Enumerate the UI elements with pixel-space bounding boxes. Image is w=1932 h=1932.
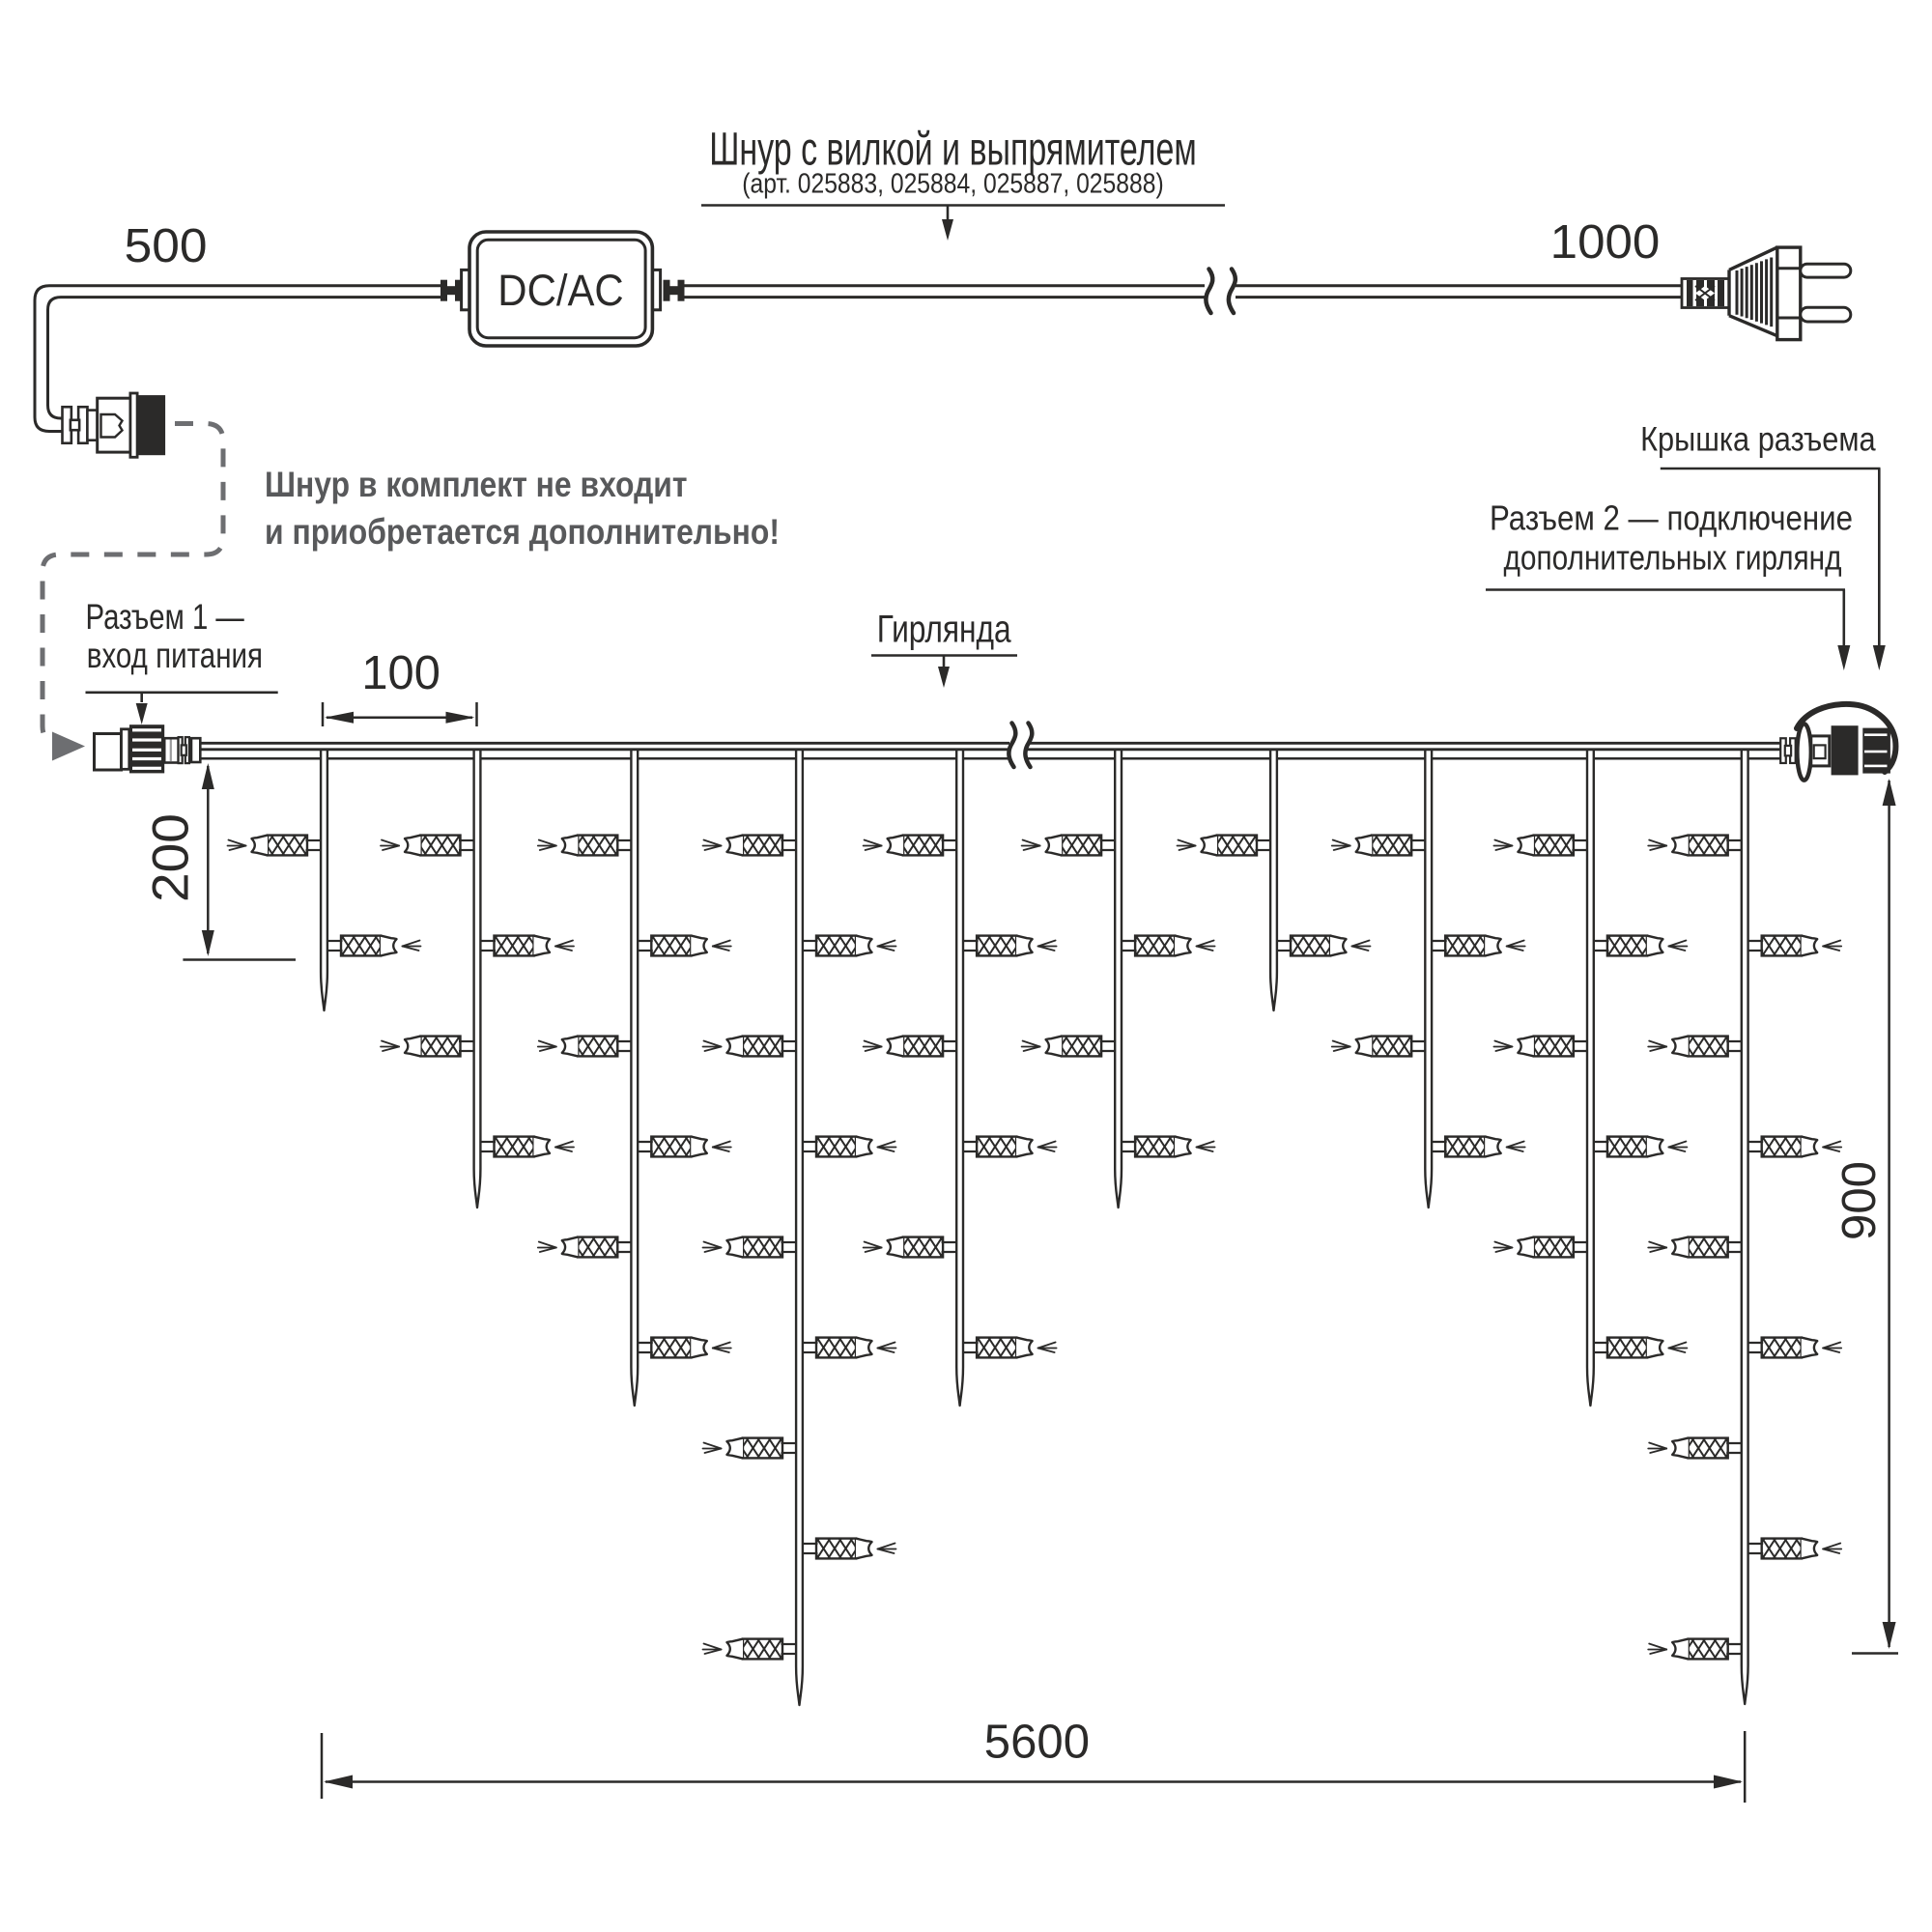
svg-text:900: 900 <box>1833 1161 1886 1240</box>
svg-text:500: 500 <box>125 220 208 272</box>
svg-text:200: 200 <box>143 813 200 902</box>
svg-text:и приобретается дополнительно!: и приобретается дополнительно! <box>265 512 780 552</box>
svg-text:Разъем 2 — подключение: Разъем 2 — подключение <box>1490 498 1853 538</box>
svg-text:Шнур в комплект не входит: Шнур в комплект не входит <box>265 465 688 504</box>
svg-text:Гирлянда: Гирлянда <box>877 609 1012 651</box>
svg-text:DC/AC: DC/AC <box>497 266 623 315</box>
svg-text:5600: 5600 <box>984 1717 1090 1769</box>
svg-text:Разъем 1 —: Разъем 1 — <box>86 597 244 637</box>
svg-text:100: 100 <box>361 647 440 699</box>
svg-text:Крышка разъема: Крышка разъема <box>1640 421 1876 459</box>
svg-text:(арт. 025883, 025884, 025887,: (арт. 025883, 025884, 025887, 025888) <box>742 169 1163 200</box>
svg-text:1000: 1000 <box>1550 216 1661 269</box>
svg-text:дополнительных гирлянд: дополнительных гирлянд <box>1504 538 1842 578</box>
svg-text:вход питания: вход питания <box>87 636 263 675</box>
